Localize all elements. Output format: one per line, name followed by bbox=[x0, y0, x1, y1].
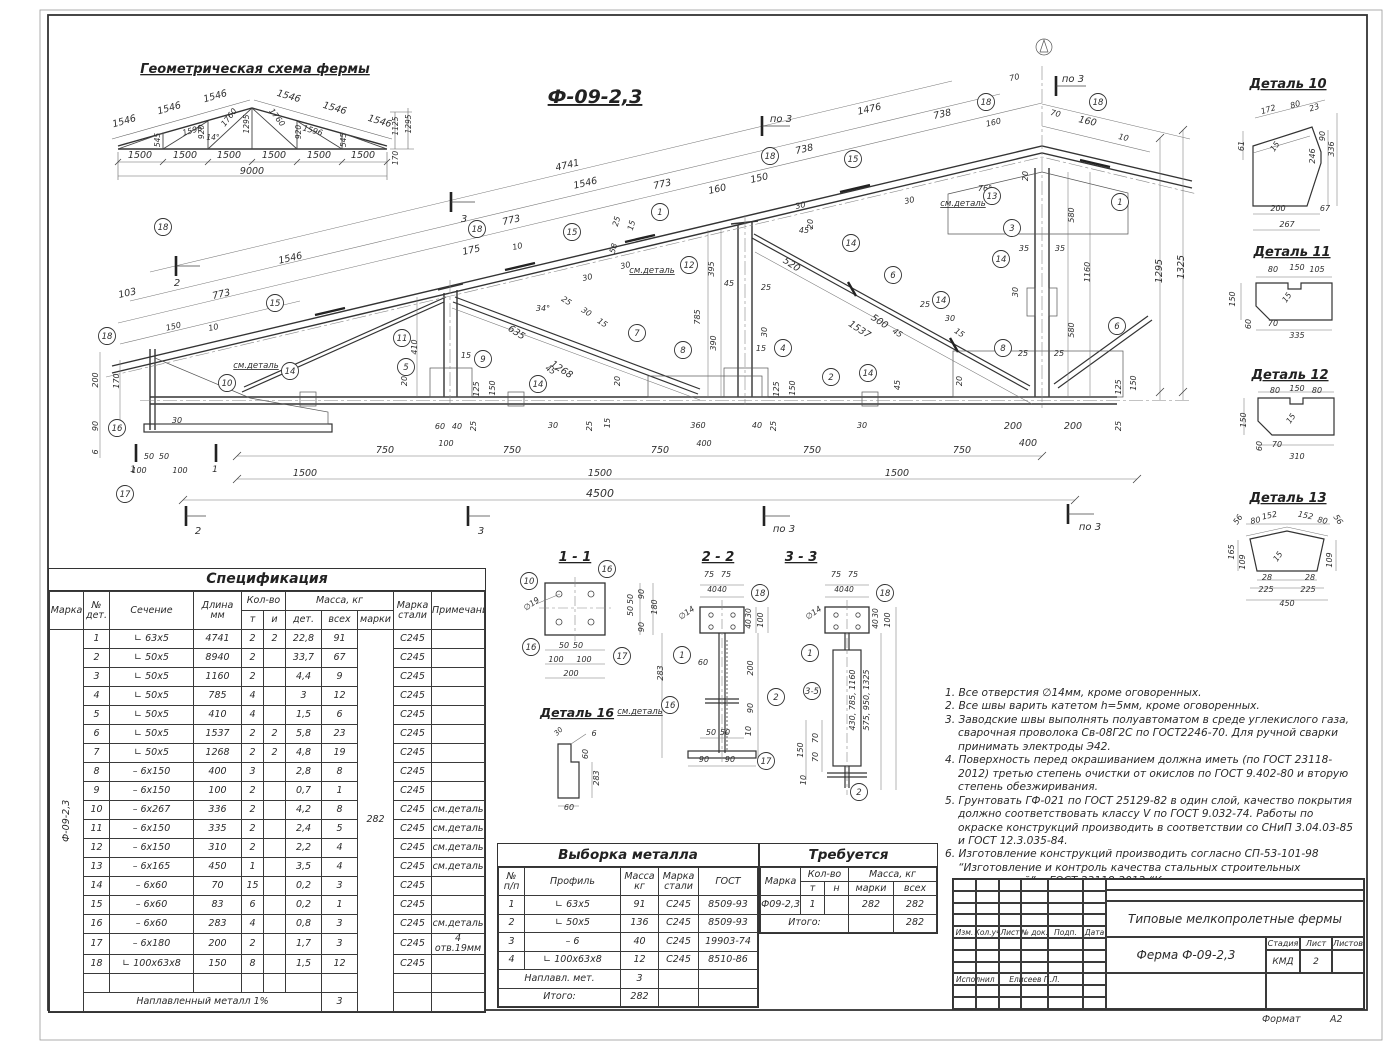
metal-title: Выборка металла bbox=[498, 844, 758, 867]
tb-grid-cell bbox=[976, 903, 999, 915]
table-cell: 4 bbox=[242, 915, 264, 934]
dim-label: 225 bbox=[1300, 585, 1315, 594]
dim-label: 90 bbox=[637, 589, 646, 599]
tb-grid-cell bbox=[999, 950, 1021, 962]
table-cell: 6 bbox=[84, 725, 110, 744]
tb-grid-cell bbox=[999, 962, 1021, 974]
format-value: А2 bbox=[1330, 1014, 1343, 1025]
callout-number: 16 bbox=[526, 643, 537, 653]
callout-number: 14 bbox=[533, 380, 544, 390]
dim-label: 80 bbox=[1289, 99, 1301, 111]
tb-grid-cell bbox=[976, 973, 999, 985]
dim-label: 75 bbox=[848, 570, 858, 579]
dim-label: 15 bbox=[626, 219, 637, 231]
table-cell: 785 bbox=[194, 687, 242, 706]
tb-grid-cell bbox=[976, 879, 999, 891]
table-cell bbox=[242, 973, 264, 992]
dim-label: 1596 bbox=[302, 123, 324, 137]
dim-label: 150 bbox=[1239, 412, 1248, 427]
dim-label: 100 bbox=[756, 612, 765, 627]
table-cell: 100 bbox=[194, 782, 242, 801]
col-mass-all: всех bbox=[894, 882, 937, 896]
table-row: 15– 6x608360,21С245 bbox=[50, 896, 485, 915]
dim-label: 773 bbox=[652, 177, 672, 192]
tb-col-header: Изм. bbox=[953, 926, 976, 938]
table-cell: 3 bbox=[621, 970, 659, 989]
table-cell bbox=[110, 973, 194, 992]
table-cell: 0,8 bbox=[286, 915, 322, 934]
detail-16-title: Деталь 16 bbox=[539, 705, 614, 720]
table-cell: 283 bbox=[194, 915, 242, 934]
dim-label: 1546 bbox=[322, 100, 348, 117]
table-cell: 12 bbox=[322, 687, 358, 706]
table-cell: С245 bbox=[394, 649, 432, 668]
table-cell bbox=[432, 954, 485, 973]
dim-label: 200 bbox=[1270, 204, 1285, 213]
dim-label: 1546 bbox=[202, 88, 228, 105]
table-cell: – 6x150 bbox=[110, 839, 194, 858]
table-cell: 0,2 bbox=[286, 877, 322, 896]
table-cell bbox=[264, 820, 286, 839]
dim-label: 920 bbox=[294, 125, 303, 140]
dim-label: 738 bbox=[794, 142, 814, 157]
tb-grid-cell bbox=[1048, 973, 1083, 985]
dim-label: 10 bbox=[744, 726, 753, 736]
callout-number: 18 bbox=[880, 589, 891, 599]
dim-label: 750 bbox=[651, 445, 669, 456]
table-cell: Итого: bbox=[499, 988, 621, 1007]
dim-label: 635 bbox=[506, 323, 527, 342]
table-cell: 4 bbox=[322, 839, 358, 858]
dim-label: 150 bbox=[488, 380, 497, 395]
tb-grid-cell bbox=[1083, 891, 1106, 903]
table-cell: 15 bbox=[242, 877, 264, 896]
dim-label: 45 bbox=[724, 279, 734, 288]
table-cell: С245 bbox=[659, 914, 699, 933]
dim-label: 1500 bbox=[128, 150, 152, 161]
callout-number: 10 bbox=[524, 577, 535, 587]
tb-grid-cell bbox=[1083, 962, 1106, 974]
dim-label: 15 bbox=[1271, 550, 1284, 564]
table-cell: 282 bbox=[358, 630, 394, 1012]
table-cell bbox=[699, 970, 758, 989]
table-cell: 2 bbox=[242, 725, 264, 744]
callout-number: 8 bbox=[1000, 344, 1006, 354]
table-cell bbox=[264, 782, 286, 801]
section-2-2: 2 - 2 75754040∅143040100283602009010см.д… bbox=[617, 550, 784, 770]
dim-label: 25 bbox=[769, 421, 778, 431]
specification-table: Спецификация Марка № дет. Сечение Длина … bbox=[48, 568, 486, 1013]
detail-10: Деталь 10 172802361159024633620067267 bbox=[1237, 77, 1337, 230]
table-cell: 8509-93 bbox=[699, 896, 758, 915]
dim-label: 750 bbox=[503, 445, 521, 456]
callout-number: 1 bbox=[807, 649, 812, 659]
col-mass: Масса, кг bbox=[286, 592, 394, 611]
table-cell: 14 bbox=[84, 877, 110, 896]
dim-label: 67 bbox=[1320, 204, 1331, 213]
table-row: 5∟ 50x541041,56С245 bbox=[50, 706, 485, 725]
dim-label: 30 bbox=[580, 305, 593, 318]
dim-label: 152 bbox=[1297, 510, 1314, 522]
table-row: Ф09-2,31282282 bbox=[761, 896, 937, 915]
dim-label: 2 bbox=[195, 526, 201, 537]
dim-label: 1295 bbox=[404, 114, 413, 133]
table-cell: 8509-93 bbox=[699, 914, 758, 933]
dim-label: 100 bbox=[548, 655, 563, 664]
dim-label: 2 bbox=[174, 278, 180, 289]
table-cell: ∟ 50x5 bbox=[110, 706, 194, 725]
tb-grid-cell bbox=[1021, 950, 1048, 962]
table-cell: 282 bbox=[849, 896, 894, 915]
table-cell: 6 bbox=[242, 896, 264, 915]
table-cell: С245 bbox=[394, 934, 432, 955]
dim-label: по 3 bbox=[1062, 74, 1084, 85]
table-cell: 22,8 bbox=[286, 630, 322, 649]
table-cell: ∟ 63x5 bbox=[525, 896, 621, 915]
table-cell: 3 bbox=[286, 687, 322, 706]
callout-number: 14 bbox=[936, 296, 947, 306]
table-cell: см.деталь bbox=[432, 858, 485, 877]
dim-label: 360 bbox=[690, 421, 705, 430]
table-cell bbox=[432, 630, 485, 649]
tb-grid-cell bbox=[953, 950, 976, 962]
drawing-sheet: 1546154615461546154615461596159617601760… bbox=[0, 0, 1400, 1050]
tb-col-header: № док. bbox=[1021, 926, 1048, 938]
table-cell: 5 bbox=[322, 820, 358, 839]
dim-label: 545 bbox=[153, 133, 162, 148]
tb-sheet-header: Лист bbox=[1300, 937, 1332, 950]
tb-grid-cell bbox=[1021, 997, 1048, 1009]
table-cell: 40 bbox=[621, 933, 659, 952]
table-cell: 4 bbox=[84, 687, 110, 706]
tb-col-header: Лист bbox=[999, 926, 1021, 938]
table-cell: 1,5 bbox=[286, 706, 322, 725]
note-item: 1. Все отверстия ∅14мм, кроме оговоренны… bbox=[945, 687, 1361, 700]
table-cell bbox=[432, 744, 485, 763]
table-row: 1∟ 63x591С2458509-93 bbox=[499, 896, 758, 915]
dim-label: 395 bbox=[707, 261, 716, 276]
callout-number: 1 bbox=[1117, 198, 1122, 208]
tb-strip1 bbox=[1106, 879, 1364, 890]
dim-label: 3 bbox=[478, 526, 484, 537]
table-cell: – 6 bbox=[525, 933, 621, 952]
dim-label: 750 bbox=[376, 445, 394, 456]
tb-stage-header: Стадия bbox=[1266, 937, 1300, 950]
table-row: 8– 6x15040032,88С245 bbox=[50, 763, 485, 782]
dim-label: 70 bbox=[1268, 319, 1278, 328]
dim-label: 1546 bbox=[277, 250, 303, 266]
dim-label: 200 bbox=[1004, 421, 1022, 432]
table-cell: – 6x60 bbox=[110, 896, 194, 915]
callout-number: 8 bbox=[680, 346, 686, 356]
tb-grid-cell bbox=[1083, 985, 1106, 997]
col-qty-t: т bbox=[242, 611, 264, 630]
table-cell bbox=[264, 763, 286, 782]
table-row bbox=[50, 973, 485, 992]
general-notes: 1. Все отверстия ∅14мм, кроме оговоренны… bbox=[945, 687, 1361, 902]
table-cell: С245 bbox=[394, 915, 432, 934]
table-cell: 2 bbox=[242, 782, 264, 801]
dim-label: 1500 bbox=[262, 150, 286, 161]
col-steel: Марка стали bbox=[659, 868, 699, 896]
tb-grid-cell bbox=[1021, 938, 1048, 950]
table-cell: 1 bbox=[801, 896, 825, 915]
col-qty: Кол-во bbox=[801, 868, 849, 882]
tb-grid-cell bbox=[1083, 997, 1106, 1009]
tb-sheets-value bbox=[1332, 950, 1364, 973]
table-row: 3∟ 50x5116024,49С245 bbox=[50, 668, 485, 687]
tb-grid-cell bbox=[1083, 879, 1106, 891]
table-cell: 17 bbox=[84, 934, 110, 955]
note-item: 2. Все швы варить катетом h=5мм, кроме о… bbox=[945, 700, 1361, 713]
dim-label: 56 bbox=[1231, 513, 1244, 527]
dim-label: 61 bbox=[1237, 141, 1246, 151]
main-truss-view: Ф-09-2,3 4741154677377315467731031751030… bbox=[91, 39, 1197, 537]
section-2-2-title: 2 - 2 bbox=[702, 550, 735, 565]
dim-label: 25 bbox=[1018, 349, 1028, 358]
dim-label: 15 bbox=[756, 344, 766, 353]
table-cell: 8 bbox=[242, 954, 264, 973]
dim-label: 1295 bbox=[242, 114, 251, 133]
dim-label: 1500 bbox=[307, 150, 331, 161]
tb-grid-cell bbox=[999, 997, 1021, 1009]
callout-number: 17 bbox=[617, 652, 628, 662]
dim-label: 1546 bbox=[156, 100, 182, 117]
table-cell bbox=[394, 973, 432, 992]
table-cell: 8 bbox=[84, 763, 110, 782]
table-cell: С245 bbox=[394, 668, 432, 687]
dim-label: 200 bbox=[563, 669, 578, 678]
callout-number: 18 bbox=[158, 223, 169, 233]
col-mass: Масса, кг bbox=[849, 868, 937, 882]
table-cell bbox=[264, 687, 286, 706]
table-cell: 33,7 bbox=[286, 649, 322, 668]
dim-label: 500 bbox=[869, 312, 890, 331]
dim-label: 30 bbox=[581, 272, 593, 283]
dim-label: 310 bbox=[1289, 452, 1304, 461]
table-cell bbox=[264, 668, 286, 687]
table-cell: 1,7 bbox=[286, 934, 322, 955]
dim-label: см.деталь bbox=[617, 707, 663, 717]
dim-label: 125 bbox=[472, 381, 481, 396]
table-cell: 83 bbox=[194, 896, 242, 915]
dim-label: 90 bbox=[91, 421, 100, 431]
dim-label: 1325 bbox=[1176, 255, 1187, 279]
table-cell: 282 bbox=[621, 988, 659, 1007]
tb-grid-cell bbox=[1048, 938, 1083, 950]
dim-label: 30 bbox=[553, 725, 565, 737]
table-cell: 2 bbox=[264, 744, 286, 763]
tb-project-title: Типовые мелкопролетные фермы bbox=[1106, 901, 1364, 937]
table-cell: – 6x150 bbox=[110, 782, 194, 801]
dim-label: 15 bbox=[1268, 140, 1281, 154]
callout-number: 18 bbox=[755, 589, 766, 599]
dim-label: 45 bbox=[891, 326, 904, 339]
tb-grid-cell bbox=[1021, 914, 1048, 926]
dim-label: 575, 950, 1325 bbox=[862, 669, 871, 730]
table-cell: 15 bbox=[84, 896, 110, 915]
dim-label: 1546 bbox=[367, 113, 393, 130]
callout-number: 15 bbox=[848, 155, 859, 165]
callout-number: 2 bbox=[828, 373, 833, 383]
dim-label: ∅14 bbox=[677, 604, 696, 621]
table-cell: – 6x180 bbox=[110, 934, 194, 955]
table-cell: 2 bbox=[242, 934, 264, 955]
dim-label: 750 bbox=[953, 445, 971, 456]
dim-label: 75 bbox=[721, 570, 731, 579]
dim-label: 430, 785, 1160 bbox=[848, 669, 857, 730]
table-cell bbox=[432, 706, 485, 725]
dim-label: 105 bbox=[1309, 265, 1324, 274]
col-mass-det: дет. bbox=[286, 611, 322, 630]
col-steel: Марка стали bbox=[394, 592, 432, 630]
dim-label: 150 bbox=[1129, 375, 1138, 390]
dim-label: 35 bbox=[1019, 244, 1029, 253]
dim-label: 30 bbox=[744, 608, 753, 618]
dim-label: 50 bbox=[144, 452, 154, 461]
tb-org-cell bbox=[1106, 973, 1266, 1009]
table-cell: ∟ 50x5 bbox=[525, 914, 621, 933]
table-cell: 10 bbox=[84, 801, 110, 820]
callout-number: 14 bbox=[846, 239, 857, 249]
table-cell: – 6x267 bbox=[110, 801, 194, 820]
dim-label: 30 bbox=[871, 608, 880, 618]
tb-col-header: Дата bbox=[1083, 926, 1106, 938]
table-cell: 9 bbox=[84, 782, 110, 801]
dim-label: 50 bbox=[720, 728, 730, 737]
tb-stage-value: КМД bbox=[1266, 950, 1300, 973]
tb-grid-cell bbox=[953, 938, 976, 950]
dim-label: 1 bbox=[130, 465, 136, 475]
col-section: Сечение bbox=[110, 592, 194, 630]
table-cell: С245 bbox=[394, 763, 432, 782]
table-cell: 8510-86 bbox=[699, 951, 758, 970]
dim-label: 60 bbox=[698, 658, 708, 667]
table-cell: С245 bbox=[394, 954, 432, 973]
table-cell: 4,8 bbox=[286, 744, 322, 763]
callout-number: 18 bbox=[765, 152, 776, 162]
table-cell: 2 bbox=[499, 914, 525, 933]
dim-label: 60 bbox=[435, 422, 445, 431]
table-cell: 11 bbox=[84, 820, 110, 839]
col-length: Длина мм bbox=[194, 592, 242, 630]
dim-label: 30 bbox=[903, 195, 915, 206]
table-cell: 200 bbox=[194, 934, 242, 955]
dim-label: 40 bbox=[844, 585, 854, 594]
dim-label: 50 bbox=[573, 641, 583, 650]
dim-label: 1160 bbox=[1083, 262, 1092, 282]
tb-grid-cell bbox=[976, 938, 999, 950]
table-cell: ∟ 100x63x8 bbox=[525, 951, 621, 970]
col-npp: № п/п bbox=[499, 868, 525, 896]
tb-grid-cell bbox=[976, 985, 999, 997]
table-cell: 1268 bbox=[194, 744, 242, 763]
table-cell bbox=[286, 973, 322, 992]
col-gost: ГОСТ bbox=[699, 868, 758, 896]
table-cell: 9 bbox=[322, 668, 358, 687]
dim-label: 170 bbox=[391, 151, 400, 166]
table-row: 14– 6x6070150,23С245 bbox=[50, 877, 485, 896]
dim-label: 14° bbox=[206, 133, 220, 142]
dim-label: 410 bbox=[410, 339, 419, 354]
col-qty-t: т bbox=[801, 882, 825, 896]
col-num: № дет. bbox=[84, 592, 110, 630]
dim-label: см.деталь bbox=[629, 266, 675, 276]
callout-number: 15 bbox=[567, 228, 578, 238]
table-cell: 67 bbox=[322, 649, 358, 668]
tb-grid-cell bbox=[1083, 938, 1106, 950]
tb-grid-cell bbox=[1083, 973, 1106, 985]
table-row: 10– 6x26733624,28С245см.деталь bbox=[50, 801, 485, 820]
table-row: 12– 6x15031022,24С245см.деталь bbox=[50, 839, 485, 858]
dim-label: 1546 bbox=[111, 113, 137, 130]
dim-label: 125 bbox=[772, 381, 781, 396]
table-cell: 4741 bbox=[194, 630, 242, 649]
dim-label: 45 bbox=[893, 380, 902, 390]
dim-label: 40 bbox=[717, 585, 727, 594]
dim-label: 40 bbox=[871, 619, 880, 629]
dim-label: ∅14 bbox=[804, 604, 823, 621]
table-cell: 2 bbox=[242, 801, 264, 820]
table-cell bbox=[264, 915, 286, 934]
dim-label: 200 bbox=[746, 660, 755, 675]
tb-sheets-header: Листов bbox=[1332, 937, 1364, 950]
dim-label: 90 bbox=[1318, 131, 1327, 141]
callout-number: 13 bbox=[987, 192, 998, 202]
dim-label: 30 bbox=[945, 314, 955, 323]
table-cell: 4 bbox=[242, 687, 264, 706]
col-mass: Масса кг bbox=[621, 868, 659, 896]
callout-number: 14 bbox=[863, 369, 874, 379]
table-cell: 410 bbox=[194, 706, 242, 725]
table-cell: С245 bbox=[394, 744, 432, 763]
table-cell: 4,4 bbox=[286, 668, 322, 687]
table-cell: 400 bbox=[194, 763, 242, 782]
tb-grid-cell bbox=[953, 962, 976, 974]
table-cell bbox=[432, 877, 485, 896]
tb-grid-cell bbox=[1083, 950, 1106, 962]
dim-label: 40 bbox=[744, 619, 753, 629]
tb-extra-cell bbox=[1266, 973, 1364, 1009]
table-cell: см.деталь bbox=[432, 820, 485, 839]
dim-label: 103 bbox=[117, 286, 137, 301]
table-cell: С245 bbox=[394, 896, 432, 915]
dim-label: 28 bbox=[1262, 573, 1272, 582]
dim-label: 25 bbox=[1114, 421, 1123, 431]
section-1-1: 1 - 1 ∅19905050901805050100100200 101616… bbox=[521, 550, 660, 678]
dim-label: 1125 bbox=[391, 116, 400, 135]
table-row: 18∟ 100x63x815081,512С245 bbox=[50, 954, 485, 973]
table-cell: 4 bbox=[499, 951, 525, 970]
table-cell: – 6x150 bbox=[110, 763, 194, 782]
callout-number: 16 bbox=[665, 701, 676, 711]
tb-strip2 bbox=[1106, 890, 1364, 901]
metal-rows: 1∟ 63x591С2458509-932∟ 50x5136С2458509-9… bbox=[499, 896, 758, 1007]
dim-label: 70 bbox=[811, 733, 820, 743]
tb-col-header: Подп. bbox=[1048, 926, 1083, 938]
dim-label: 246 bbox=[1308, 148, 1317, 163]
table-cell: 2,4 bbox=[286, 820, 322, 839]
table-cell bbox=[264, 649, 286, 668]
dim-label: 90 bbox=[746, 703, 755, 713]
dim-label: 70 bbox=[1008, 72, 1020, 83]
table-cell: см.деталь bbox=[432, 801, 485, 820]
table-cell: 3 bbox=[84, 668, 110, 687]
dim-label: 1295 bbox=[1154, 259, 1165, 283]
callout-number: 11 bbox=[397, 334, 408, 344]
table-cell: 336 bbox=[194, 801, 242, 820]
dim-label: 125 bbox=[1114, 379, 1123, 394]
